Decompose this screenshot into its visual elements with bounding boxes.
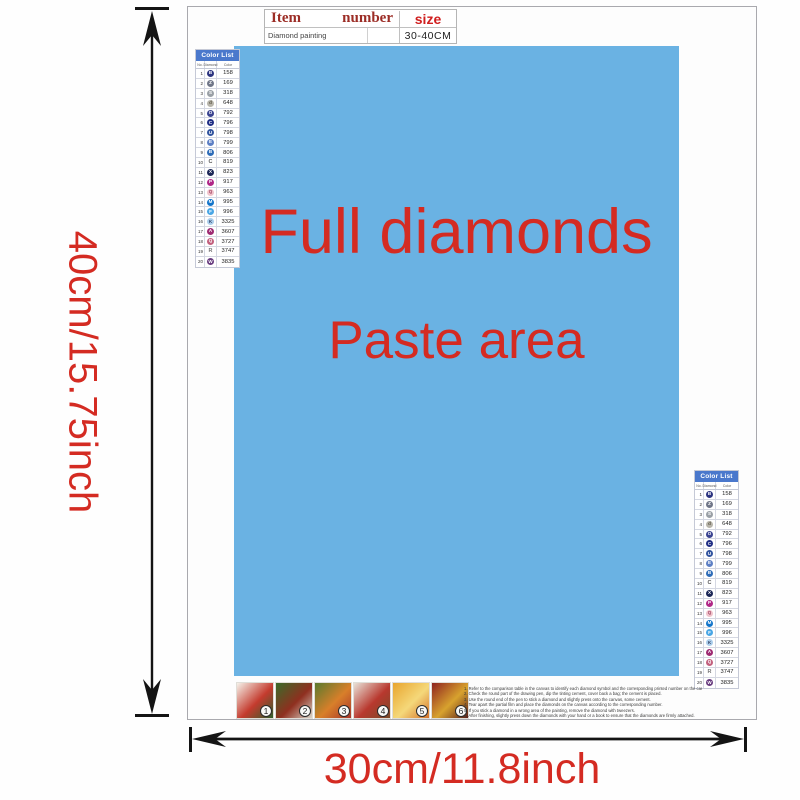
color-list-row: 9B806: [695, 569, 738, 579]
color-list-row: 8E799: [196, 138, 239, 148]
step-number-badge: 3: [338, 705, 350, 717]
row-number: 6: [196, 118, 205, 127]
table-data-row: Diamond painting 30-40CM: [265, 28, 456, 43]
color-list-column-headers: No. Diamond Color: [196, 61, 239, 69]
diamond-symbol-icon: W: [704, 678, 716, 688]
row-number: 3: [196, 89, 205, 98]
diamond-symbol-icon: S: [205, 89, 217, 98]
color-list-row: 13Q963: [695, 609, 738, 619]
dmc-color-code: 3747: [217, 247, 239, 256]
color-list-row: 12P917: [196, 178, 239, 188]
color-list-row: 12P917: [695, 599, 738, 609]
dmc-color-code: 318: [716, 510, 738, 519]
color-list-row: 7U798: [695, 549, 738, 559]
row-number: 11: [695, 589, 704, 598]
diamond-symbol-icon: P: [205, 178, 217, 187]
height-dimension-arrow: [132, 4, 172, 720]
color-list-row: 16K3325: [196, 217, 239, 227]
step-number-badge: 4: [377, 705, 389, 717]
row-number: 14: [695, 619, 704, 628]
color-list-row: 15F996: [695, 628, 738, 638]
empty-number-cell: [367, 28, 399, 43]
table-header-row: Item number size: [265, 10, 456, 28]
diamond-symbol-icon: R: [205, 247, 217, 256]
color-list-row: 17A3607: [196, 227, 239, 237]
color-list-title: Color List: [196, 50, 239, 61]
row-number: 20: [196, 257, 205, 267]
header-item: Item: [271, 10, 301, 27]
color-list-rows: 1B1582Z1693S3184d6485O7926C7967U7988E799…: [695, 490, 738, 688]
dmc-color-code: 798: [217, 128, 239, 137]
dmc-color-code: 648: [716, 520, 738, 529]
header-size-cell: size: [399, 11, 456, 27]
row-number: 1: [196, 69, 205, 78]
dmc-color-code: 995: [217, 198, 239, 207]
dmc-color-code: 806: [217, 148, 239, 157]
color-list-row: 20W3835: [196, 257, 239, 267]
color-list-row: 6C796: [196, 118, 239, 128]
row-number: 15: [695, 628, 704, 637]
dmc-color-code: 996: [716, 628, 738, 637]
color-list-right: Color List No. Diamond Color 1B1582Z1693…: [694, 470, 739, 689]
row-number: 5: [695, 530, 704, 539]
diamond-symbol-icon: E: [205, 138, 217, 147]
row-number: 16: [695, 638, 704, 647]
canvas-sheet: Item number size Diamond painting 30-40C…: [187, 6, 757, 720]
diamond-symbol-icon: B: [205, 148, 217, 157]
paste-area-line1: Full diamonds: [260, 196, 652, 268]
height-label: 40cm/15.75inch: [60, 231, 105, 513]
color-list-row: 17A3607: [695, 648, 738, 658]
color-list-row: 10C819: [196, 158, 239, 168]
header-size: size: [415, 11, 441, 27]
diamond-symbol-icon: B: [704, 490, 716, 499]
row-number: 2: [695, 500, 704, 509]
row-number: 7: [695, 549, 704, 558]
color-list-row: 11X823: [695, 589, 738, 599]
color-list-row: 19R3747: [196, 247, 239, 257]
color-list-row: 9B806: [196, 148, 239, 158]
dmc-color-code: 799: [716, 559, 738, 568]
dmc-color-code: 823: [217, 168, 239, 177]
row-number: 1: [695, 490, 704, 499]
size-value-cell: 30-40CM: [399, 28, 456, 43]
color-list-row: 19R3747: [695, 668, 738, 678]
dmc-color-code: 648: [217, 99, 239, 108]
diamond-symbol-icon: R: [704, 668, 716, 677]
dmc-color-code: 995: [716, 619, 738, 628]
diamond-symbol-icon: d: [704, 520, 716, 529]
diamond-symbol-icon: F: [704, 628, 716, 637]
dmc-color-code: 158: [217, 69, 239, 78]
row-number: 7: [196, 128, 205, 137]
row-number: 10: [196, 158, 205, 167]
color-list-row: 18Q3727: [695, 658, 738, 668]
dmc-color-code: 169: [716, 500, 738, 509]
col-color: Color: [217, 61, 239, 68]
color-list-row: 2Z169: [695, 500, 738, 510]
diamond-symbol-icon: C: [704, 579, 716, 588]
color-list-column-headers: No. Diamond Color: [695, 482, 738, 490]
col-diamond: Diamond: [704, 482, 716, 489]
color-list-row: 2Z169: [196, 79, 239, 89]
row-number: 13: [695, 609, 704, 618]
color-list-row: 7U798: [196, 128, 239, 138]
diamond-symbol-icon: Z: [205, 79, 217, 88]
row-number: 4: [695, 520, 704, 529]
dmc-color-code: 799: [217, 138, 239, 147]
row-number: 12: [695, 599, 704, 608]
width-label: 30cm/11.8inch: [324, 745, 600, 794]
dmc-color-code: 792: [217, 109, 239, 118]
dmc-color-code: 806: [716, 569, 738, 578]
row-number: 18: [196, 237, 205, 246]
row-number: 13: [196, 188, 205, 197]
dmc-color-code: 792: [716, 530, 738, 539]
dmc-color-code: 996: [217, 207, 239, 216]
color-list-row: 15F996: [196, 207, 239, 217]
dmc-color-code: 318: [217, 89, 239, 98]
step-photo: 5: [392, 682, 430, 719]
row-number: 11: [196, 168, 205, 177]
color-list-row: 1B158: [695, 490, 738, 500]
diamond-symbol-icon: S: [704, 510, 716, 519]
color-list-row: 6C796: [695, 539, 738, 549]
diamond-symbol-icon: Z: [704, 500, 716, 509]
diamond-symbol-icon: W: [205, 257, 217, 267]
dmc-color-code: 796: [716, 539, 738, 548]
dmc-color-code: 3835: [217, 257, 239, 267]
col-diamond: Diamond: [205, 61, 217, 68]
step-thumbnails: 123456: [236, 682, 469, 719]
header-number: number: [342, 10, 393, 27]
color-list-rows: 1B1582Z1693S3184d6485O7926C7967U7988E799…: [196, 69, 239, 267]
diamond-symbol-icon: B: [704, 569, 716, 578]
color-list-row: 8E799: [695, 559, 738, 569]
dmc-color-code: 798: [716, 549, 738, 558]
diamond-symbol-icon: X: [704, 589, 716, 598]
row-number: 17: [695, 648, 704, 657]
color-list-left: Color List No. Diamond Color 1B1582Z1693…: [195, 49, 240, 268]
step-number-badge: 2: [299, 705, 311, 717]
paste-area-line2: Paste area: [328, 310, 584, 371]
dmc-color-code: 158: [716, 490, 738, 499]
row-number: 17: [196, 227, 205, 236]
color-list-row: 1B158: [196, 69, 239, 79]
color-list-title: Color List: [695, 471, 738, 482]
diamond-symbol-icon: M: [704, 619, 716, 628]
product-name-cell: Diamond painting: [265, 28, 367, 43]
row-number: 15: [196, 207, 205, 216]
diamond-symbol-icon: d: [205, 99, 217, 108]
row-number: 19: [196, 247, 205, 256]
color-list-row: 4d648: [695, 520, 738, 530]
dmc-color-code: 917: [716, 599, 738, 608]
step-number-badge: 1: [260, 705, 272, 717]
diamond-symbol-icon: E: [704, 559, 716, 568]
diamond-symbol-icon: U: [205, 128, 217, 137]
row-number: 2: [196, 79, 205, 88]
paste-area: Full diamonds Paste area: [234, 46, 679, 676]
diamond-symbol-icon: U: [704, 549, 716, 558]
dmc-color-code: 3727: [716, 658, 738, 667]
product-infographic: 40cm/15.75inch 30cm/11.8inch Item number…: [0, 0, 800, 800]
color-list-row: 16K3325: [695, 638, 738, 648]
dmc-color-code: 3747: [716, 668, 738, 677]
row-number: 19: [695, 668, 704, 677]
diamond-symbol-icon: P: [704, 599, 716, 608]
row-number: 6: [695, 539, 704, 548]
diamond-symbol-icon: O: [205, 109, 217, 118]
dmc-color-code: 796: [217, 118, 239, 127]
dmc-color-code: 169: [217, 79, 239, 88]
color-list-row: 18Q3727: [196, 237, 239, 247]
diamond-symbol-icon: B: [205, 69, 217, 78]
diamond-symbol-icon: A: [205, 227, 217, 236]
dmc-color-code: 819: [716, 579, 738, 588]
diamond-symbol-icon: O: [704, 530, 716, 539]
row-number: 18: [695, 658, 704, 667]
dmc-color-code: 3727: [217, 237, 239, 246]
instruction-text: 1. Refer to the comparison table in the …: [464, 686, 702, 718]
step-photo: 3: [314, 682, 352, 719]
color-list-row: 14M995: [695, 619, 738, 629]
color-list-row: 4d648: [196, 99, 239, 109]
row-number: 10: [695, 579, 704, 588]
color-list-row: 5O792: [196, 109, 239, 119]
diamond-symbol-icon: C: [704, 539, 716, 548]
diamond-symbol-icon: A: [704, 648, 716, 657]
row-number: 3: [695, 510, 704, 519]
diamond-symbol-icon: Q: [704, 609, 716, 618]
dmc-color-code: 963: [217, 188, 239, 197]
step-number-badge: 5: [416, 705, 428, 717]
row-number: 8: [196, 138, 205, 147]
color-list-row: 10C819: [695, 579, 738, 589]
dmc-color-code: 3325: [716, 638, 738, 647]
dmc-color-code: 3835: [716, 678, 738, 688]
row-number: 8: [695, 559, 704, 568]
dmc-color-code: 917: [217, 178, 239, 187]
row-number: 4: [196, 99, 205, 108]
diamond-symbol-icon: Q: [205, 237, 217, 246]
diamond-symbol-icon: Q: [205, 188, 217, 197]
diamond-symbol-icon: F: [205, 207, 217, 216]
step-photo: 1: [236, 682, 274, 719]
color-list-row: 3S318: [196, 89, 239, 99]
col-color: Color: [716, 482, 738, 489]
row-number: 9: [695, 569, 704, 578]
step-photo: 4: [353, 682, 391, 719]
dmc-color-code: 819: [217, 158, 239, 167]
row-number: 9: [196, 148, 205, 157]
step-photo: 2: [275, 682, 313, 719]
color-list-row: 13Q963: [196, 188, 239, 198]
diamond-symbol-icon: C: [205, 118, 217, 127]
dmc-color-code: 3607: [217, 227, 239, 236]
dmc-color-code: 823: [716, 589, 738, 598]
item-size-table: Item number size Diamond painting 30-40C…: [264, 9, 457, 44]
dmc-color-code: 3325: [217, 217, 239, 226]
row-number: 14: [196, 198, 205, 207]
diamond-symbol-icon: K: [205, 217, 217, 226]
header-item-number-cell: Item number: [265, 10, 399, 27]
diamond-symbol-icon: C: [205, 158, 217, 167]
diamond-symbol-icon: M: [205, 198, 217, 207]
diamond-symbol-icon: Q: [704, 658, 716, 667]
color-list-row: 11X823: [196, 168, 239, 178]
diamond-symbol-icon: X: [205, 168, 217, 177]
color-list-row: 5O792: [695, 530, 738, 540]
color-list-row: 14M995: [196, 198, 239, 208]
row-number: 16: [196, 217, 205, 226]
color-list-row: 3S318: [695, 510, 738, 520]
instruction-line: 6. After finishing, slightly press down …: [464, 713, 702, 718]
row-number: 5: [196, 109, 205, 118]
dmc-color-code: 3607: [716, 648, 738, 657]
row-number: 12: [196, 178, 205, 187]
dmc-color-code: 963: [716, 609, 738, 618]
diamond-symbol-icon: K: [704, 638, 716, 647]
